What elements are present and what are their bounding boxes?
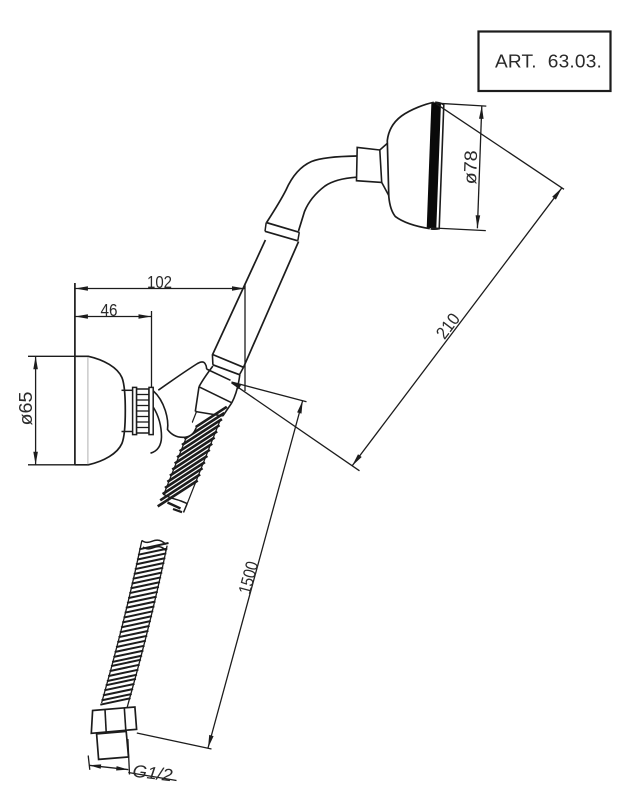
svg-text:ART. 63.03.: ART. 63.03. <box>495 51 602 72</box>
svg-text:ø78: ø78 <box>460 150 481 185</box>
svg-text:46: 46 <box>101 300 118 320</box>
svg-text:ø65: ø65 <box>16 392 36 426</box>
svg-text:102: 102 <box>147 272 172 292</box>
